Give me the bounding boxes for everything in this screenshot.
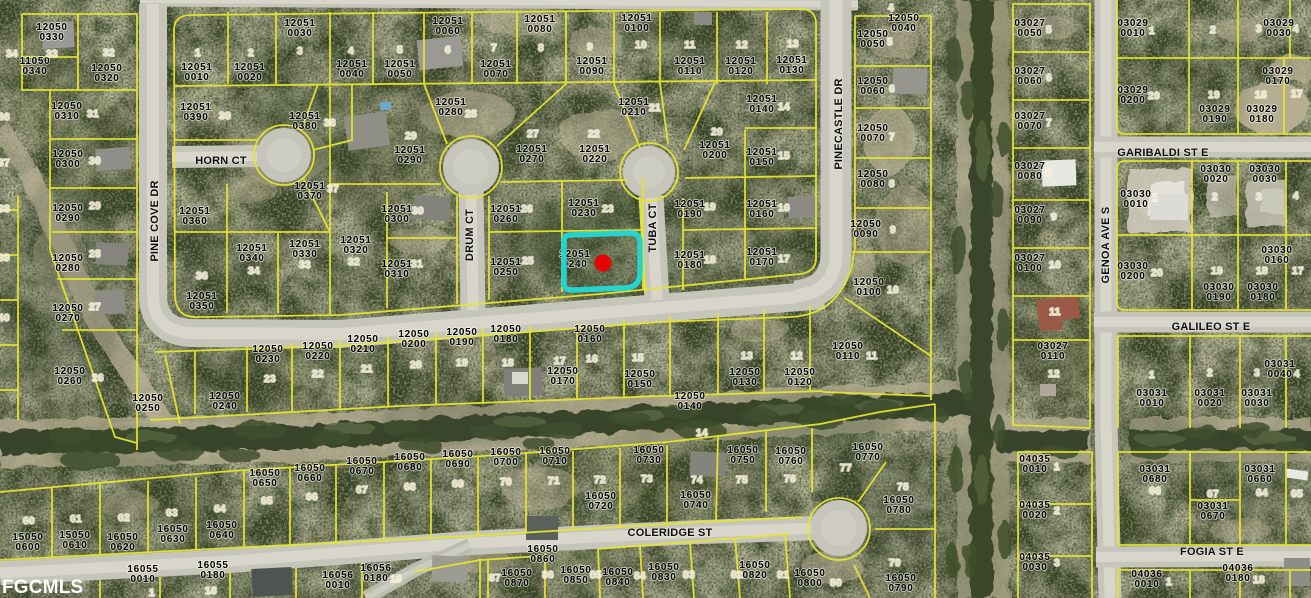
svg-text:87: 87	[489, 573, 501, 584]
svg-text:0170: 0170	[749, 257, 774, 268]
svg-text:0670: 0670	[349, 466, 374, 477]
svg-text:2: 2	[1212, 192, 1218, 203]
svg-text:0180: 0180	[200, 570, 225, 581]
svg-text:0220: 0220	[305, 351, 330, 362]
svg-text:0030: 0030	[1022, 562, 1047, 573]
svg-text:0030: 0030	[1252, 174, 1277, 185]
svg-text:21: 21	[649, 103, 661, 114]
svg-text:84: 84	[634, 571, 646, 582]
svg-text:0040: 0040	[891, 23, 916, 34]
svg-text:1: 1	[1152, 193, 1158, 204]
svg-text:0010: 0010	[1022, 464, 1047, 475]
svg-text:10: 10	[887, 285, 899, 296]
svg-text:79: 79	[889, 558, 901, 569]
svg-text:0090: 0090	[579, 66, 604, 77]
svg-text:70: 70	[500, 477, 512, 488]
svg-text:0180: 0180	[1250, 292, 1275, 303]
svg-text:20: 20	[410, 360, 422, 371]
svg-text:0070: 0070	[1017, 121, 1042, 132]
svg-text:0110: 0110	[678, 66, 703, 77]
svg-text:67: 67	[356, 485, 368, 496]
svg-text:80: 80	[830, 578, 842, 589]
svg-text:32: 32	[348, 257, 360, 268]
svg-text:0270: 0270	[55, 313, 80, 324]
svg-text:63: 63	[166, 508, 178, 519]
svg-text:0270: 0270	[519, 154, 544, 165]
svg-text:83: 83	[683, 570, 695, 581]
svg-text:0070: 0070	[860, 133, 885, 144]
svg-text:0200: 0200	[1120, 271, 1145, 282]
svg-text:0820: 0820	[742, 570, 767, 581]
svg-text:0100: 0100	[856, 287, 881, 298]
svg-text:19: 19	[1211, 266, 1223, 277]
svg-text:0210: 0210	[621, 107, 646, 118]
svg-text:0660: 0660	[1247, 474, 1272, 485]
svg-text:28: 28	[465, 109, 477, 120]
svg-text:0770: 0770	[855, 452, 880, 463]
svg-text:0240: 0240	[212, 401, 237, 412]
svg-text:2: 2	[248, 48, 254, 59]
svg-text:0680: 0680	[397, 462, 422, 473]
svg-text:GARIBALDI ST E: GARIBALDI ST E	[1117, 147, 1208, 159]
svg-text:0090: 0090	[853, 229, 878, 240]
svg-text:0850: 0850	[563, 575, 588, 586]
svg-text:0190: 0190	[449, 337, 474, 348]
svg-text:4: 4	[1293, 191, 1299, 202]
svg-text:0010: 0010	[1123, 199, 1148, 210]
svg-text:PINECASTLE DR: PINECASTLE DR	[833, 78, 845, 169]
svg-text:10: 10	[1049, 260, 1061, 271]
svg-text:0060: 0060	[860, 86, 885, 97]
svg-text:1: 1	[195, 48, 201, 59]
svg-text:COLERIDGE ST: COLERIDGE ST	[628, 527, 713, 539]
svg-text:69: 69	[452, 479, 464, 490]
svg-text:37: 37	[327, 184, 339, 195]
svg-text:0010: 0010	[1120, 28, 1145, 39]
svg-text:0010: 0010	[325, 580, 350, 591]
svg-text:18: 18	[1255, 90, 1267, 101]
svg-text:0760: 0760	[778, 456, 803, 467]
svg-text:38: 38	[324, 118, 336, 129]
svg-text:16: 16	[778, 203, 790, 214]
svg-text:18: 18	[1256, 266, 1268, 277]
svg-text:65: 65	[1291, 489, 1303, 500]
svg-text:17: 17	[554, 356, 566, 367]
svg-text:0300: 0300	[55, 159, 80, 170]
svg-text:66: 66	[1149, 486, 1161, 497]
svg-text:0160: 0160	[577, 334, 602, 345]
svg-text:0310: 0310	[54, 111, 79, 122]
svg-text:0160: 0160	[1264, 255, 1289, 266]
svg-text:0720: 0720	[588, 501, 613, 512]
svg-text:60: 60	[23, 516, 35, 527]
svg-text:3: 3	[1256, 192, 1262, 203]
svg-text:36: 36	[196, 271, 208, 282]
svg-text:0190: 0190	[677, 209, 702, 220]
svg-text:4: 4	[1293, 24, 1299, 35]
svg-text:20: 20	[1148, 91, 1160, 102]
svg-text:23: 23	[264, 374, 276, 385]
svg-text:0790: 0790	[888, 583, 913, 594]
svg-text:12: 12	[791, 351, 803, 362]
svg-text:26: 26	[92, 373, 104, 384]
svg-text:64: 64	[1256, 488, 1268, 499]
svg-text:6: 6	[445, 45, 451, 56]
svg-text:0730: 0730	[636, 455, 661, 466]
svg-text:86: 86	[542, 570, 554, 581]
svg-text:1: 1	[1166, 577, 1172, 588]
svg-text:0110: 0110	[1041, 351, 1066, 362]
svg-text:31: 31	[411, 259, 423, 270]
svg-text:0390: 0390	[183, 112, 208, 123]
svg-text:0340: 0340	[239, 253, 264, 264]
svg-text:5: 5	[1046, 25, 1052, 36]
svg-text:31: 31	[87, 109, 99, 120]
svg-text:0360: 0360	[182, 216, 207, 227]
svg-text:14: 14	[778, 102, 790, 113]
svg-text:17: 17	[1292, 266, 1304, 277]
svg-text:77: 77	[840, 463, 852, 474]
svg-text:0100: 0100	[1017, 263, 1042, 274]
svg-text:19: 19	[456, 358, 468, 369]
svg-text:15: 15	[632, 353, 644, 364]
svg-text:0190: 0190	[1202, 114, 1227, 125]
svg-text:1: 1	[1149, 26, 1155, 37]
svg-text:DRUM CT: DRUM CT	[464, 209, 476, 261]
svg-text:76: 76	[784, 474, 796, 485]
svg-text:0060: 0060	[1017, 76, 1042, 87]
svg-text:0060: 0060	[435, 26, 460, 37]
svg-text:7: 7	[889, 132, 895, 143]
svg-text:14: 14	[696, 428, 708, 439]
svg-text:0870: 0870	[504, 578, 529, 589]
svg-text:0040: 0040	[339, 69, 364, 80]
svg-text:17: 17	[778, 254, 790, 265]
svg-text:15: 15	[778, 151, 790, 162]
svg-text:8: 8	[538, 43, 544, 54]
svg-text:25: 25	[522, 256, 534, 267]
svg-text:0610: 0610	[62, 540, 87, 551]
svg-text:21: 21	[361, 364, 373, 375]
svg-text:0380: 0380	[292, 121, 317, 132]
svg-text:18: 18	[1253, 575, 1265, 586]
svg-text:0670: 0670	[1200, 511, 1225, 522]
svg-text:65: 65	[261, 496, 273, 507]
svg-text:62: 62	[118, 513, 130, 524]
svg-text:0100: 0100	[624, 23, 649, 34]
svg-text:0200: 0200	[401, 339, 426, 350]
svg-text:0630: 0630	[160, 534, 185, 545]
svg-text:8: 8	[1046, 168, 1052, 179]
svg-text:9: 9	[1051, 212, 1057, 223]
svg-text:81: 81	[777, 570, 789, 581]
svg-text:GENOA AVE S: GENOA AVE S	[1100, 207, 1112, 284]
svg-text:3: 3	[1054, 558, 1060, 569]
svg-text:2: 2	[1054, 506, 1060, 517]
svg-text:0260: 0260	[493, 214, 518, 225]
svg-text:0750: 0750	[730, 455, 755, 466]
svg-text:11: 11	[866, 351, 878, 362]
svg-text:39: 39	[0, 253, 10, 264]
svg-text:28: 28	[89, 249, 101, 260]
svg-text:13: 13	[787, 39, 799, 50]
svg-text:0030: 0030	[1244, 398, 1269, 409]
svg-text:16: 16	[586, 354, 598, 365]
svg-text:61: 61	[70, 514, 82, 525]
svg-text:27: 27	[89, 302, 101, 313]
svg-text:3: 3	[1254, 368, 1260, 379]
svg-text:2: 2	[1210, 25, 1216, 36]
svg-text:67: 67	[1207, 489, 1219, 500]
svg-text:0310: 0310	[384, 269, 409, 280]
svg-text:2: 2	[1207, 368, 1213, 379]
svg-text:0020: 0020	[1203, 174, 1228, 185]
svg-text:23: 23	[602, 204, 614, 215]
svg-text:7: 7	[491, 43, 497, 54]
svg-text:30: 30	[412, 206, 424, 217]
svg-text:0080: 0080	[1017, 171, 1042, 182]
svg-text:0600: 0600	[15, 542, 40, 553]
svg-text:0030: 0030	[287, 28, 312, 39]
svg-text:0230: 0230	[571, 208, 596, 219]
svg-text:22: 22	[312, 369, 324, 380]
svg-text:26: 26	[521, 204, 533, 215]
svg-text:0200: 0200	[1120, 95, 1145, 106]
svg-text:0710: 0710	[542, 456, 567, 467]
svg-text:0050: 0050	[860, 39, 885, 50]
svg-text:30: 30	[89, 156, 101, 167]
svg-text:0180: 0180	[677, 260, 702, 271]
svg-text:18: 18	[502, 358, 514, 369]
svg-text:33: 33	[46, 49, 58, 60]
svg-text:11: 11	[1049, 307, 1061, 318]
svg-text:0080: 0080	[527, 24, 552, 35]
svg-text:1: 1	[149, 588, 155, 598]
svg-text:33: 33	[299, 260, 311, 271]
svg-text:34: 34	[6, 49, 18, 60]
svg-text:34: 34	[248, 266, 260, 277]
svg-text:0180: 0180	[1225, 573, 1250, 584]
svg-text:4: 4	[888, 3, 894, 14]
svg-text:66: 66	[306, 492, 318, 503]
svg-text:9: 9	[587, 42, 593, 53]
svg-text:37: 37	[0, 158, 10, 169]
svg-text:0290: 0290	[397, 155, 422, 166]
svg-text:71: 71	[548, 476, 560, 487]
svg-text:0200: 0200	[702, 150, 727, 161]
svg-text:0660: 0660	[297, 473, 322, 484]
svg-text:39: 39	[219, 111, 231, 122]
svg-text:0130: 0130	[732, 377, 757, 388]
svg-text:0370: 0370	[297, 191, 322, 202]
svg-text:0340: 0340	[22, 66, 47, 77]
svg-text:36: 36	[0, 112, 10, 123]
svg-text:0010: 0010	[184, 72, 209, 83]
svg-text:0150: 0150	[749, 157, 774, 168]
svg-text:0690: 0690	[445, 459, 470, 470]
svg-text:18: 18	[704, 255, 716, 266]
svg-text:20: 20	[711, 127, 723, 138]
svg-text:3: 3	[297, 46, 303, 57]
svg-text:18: 18	[390, 574, 402, 585]
svg-text:73: 73	[641, 474, 653, 485]
svg-text:29: 29	[405, 131, 417, 142]
svg-text:18: 18	[205, 586, 217, 597]
svg-text:0700: 0700	[493, 457, 518, 468]
svg-text:38: 38	[0, 204, 10, 215]
svg-text:12: 12	[736, 40, 748, 51]
svg-text:0330: 0330	[39, 32, 64, 43]
svg-text:5: 5	[397, 45, 403, 56]
svg-text:TUBA CT: TUBA CT	[647, 203, 659, 252]
svg-text:0050: 0050	[387, 69, 412, 80]
svg-text:5: 5	[887, 37, 893, 48]
svg-text:0120: 0120	[787, 377, 812, 388]
svg-text:10: 10	[635, 40, 647, 51]
svg-text:0800: 0800	[797, 578, 822, 589]
svg-text:0840: 0840	[605, 577, 630, 588]
svg-text:0650: 0650	[252, 478, 277, 489]
svg-text:9: 9	[890, 225, 896, 236]
svg-text:0180: 0180	[1249, 114, 1274, 125]
svg-text:4: 4	[1294, 369, 1300, 380]
svg-text:0290: 0290	[55, 213, 80, 224]
svg-text:12: 12	[1048, 369, 1060, 380]
svg-text:1: 1	[1149, 370, 1155, 381]
svg-text:0780: 0780	[886, 505, 911, 516]
svg-text:PINE COVE DR: PINE COVE DR	[149, 180, 161, 261]
svg-text:0300: 0300	[384, 214, 409, 225]
svg-text:29: 29	[89, 201, 101, 212]
svg-text:68: 68	[404, 482, 416, 493]
svg-text:0170: 0170	[1265, 76, 1290, 87]
svg-text:GALILEO ST E: GALILEO ST E	[1172, 321, 1251, 333]
svg-text:0040: 0040	[1267, 369, 1292, 380]
svg-text:0220: 0220	[582, 154, 607, 165]
svg-text:0320: 0320	[343, 245, 368, 256]
svg-text:0140: 0140	[677, 401, 702, 412]
svg-text:75: 75	[736, 475, 748, 486]
svg-text:0010: 0010	[1134, 579, 1159, 590]
svg-text:20: 20	[1151, 268, 1163, 279]
svg-text:0250: 0250	[135, 403, 160, 414]
svg-text:0280: 0280	[438, 107, 463, 118]
svg-text:11: 11	[684, 40, 696, 51]
svg-text:HORN CT: HORN CT	[195, 155, 247, 167]
svg-text:8: 8	[889, 179, 895, 190]
svg-text:0130: 0130	[779, 65, 804, 76]
svg-text:19: 19	[704, 202, 716, 213]
svg-text:FGCMLS: FGCMLS	[2, 577, 83, 598]
svg-text:0740: 0740	[683, 500, 708, 511]
svg-text:0090: 0090	[1017, 215, 1042, 226]
svg-text:6: 6	[889, 84, 895, 95]
svg-text:82: 82	[731, 570, 743, 581]
svg-text:85: 85	[590, 570, 602, 581]
svg-text:4: 4	[348, 46, 354, 57]
svg-text:0170: 0170	[550, 376, 575, 387]
svg-text:0030: 0030	[1266, 28, 1291, 39]
svg-text:0050: 0050	[1017, 28, 1042, 39]
svg-text:74: 74	[691, 475, 703, 486]
svg-text:32: 32	[103, 48, 115, 59]
svg-text:0160: 0160	[749, 209, 774, 220]
svg-text:17: 17	[1291, 89, 1303, 100]
svg-text:0180: 0180	[493, 334, 518, 345]
svg-text:0140: 0140	[749, 104, 774, 115]
svg-text:0110: 0110	[836, 351, 861, 362]
svg-text:78: 78	[897, 482, 909, 493]
svg-text:0020: 0020	[237, 72, 262, 83]
svg-text:0320: 0320	[94, 73, 119, 84]
svg-text:0010: 0010	[1139, 398, 1164, 409]
svg-text:0080: 0080	[860, 179, 885, 190]
svg-text:0070: 0070	[483, 69, 508, 80]
svg-text:0230: 0230	[255, 354, 280, 365]
svg-text:19: 19	[1208, 90, 1220, 101]
svg-text:27: 27	[527, 129, 539, 140]
svg-text:0190: 0190	[1206, 292, 1231, 303]
svg-text:0280: 0280	[55, 263, 80, 274]
svg-text:0640: 0640	[209, 530, 234, 541]
svg-text:0020: 0020	[1022, 510, 1047, 521]
svg-text:13: 13	[741, 351, 753, 362]
svg-text:0210: 0210	[350, 344, 375, 355]
svg-text:FOGIA ST E: FOGIA ST E	[1180, 546, 1244, 558]
svg-text:0250: 0250	[493, 267, 518, 278]
svg-text:0330: 0330	[292, 249, 317, 260]
svg-text:3: 3	[1256, 24, 1262, 35]
svg-text:6: 6	[1046, 73, 1052, 84]
svg-text:0350: 0350	[189, 301, 214, 312]
svg-text:0620: 0620	[110, 542, 135, 553]
svg-text:0860: 0860	[530, 554, 555, 565]
svg-text:40: 40	[0, 313, 10, 324]
svg-text:64: 64	[214, 504, 226, 515]
svg-text:0150: 0150	[627, 379, 652, 390]
svg-text:0120: 0120	[728, 66, 753, 77]
svg-text:0010: 0010	[130, 574, 155, 585]
svg-text:0180: 0180	[363, 573, 388, 584]
svg-text:1: 1	[1054, 462, 1060, 473]
svg-text:0680: 0680	[1142, 474, 1167, 485]
svg-text:0260: 0260	[57, 376, 82, 387]
svg-text:72: 72	[594, 475, 606, 486]
svg-text:0020: 0020	[1197, 398, 1222, 409]
svg-text:0830: 0830	[651, 572, 676, 583]
svg-text:7: 7	[1046, 118, 1052, 129]
svg-text:22: 22	[588, 129, 600, 140]
